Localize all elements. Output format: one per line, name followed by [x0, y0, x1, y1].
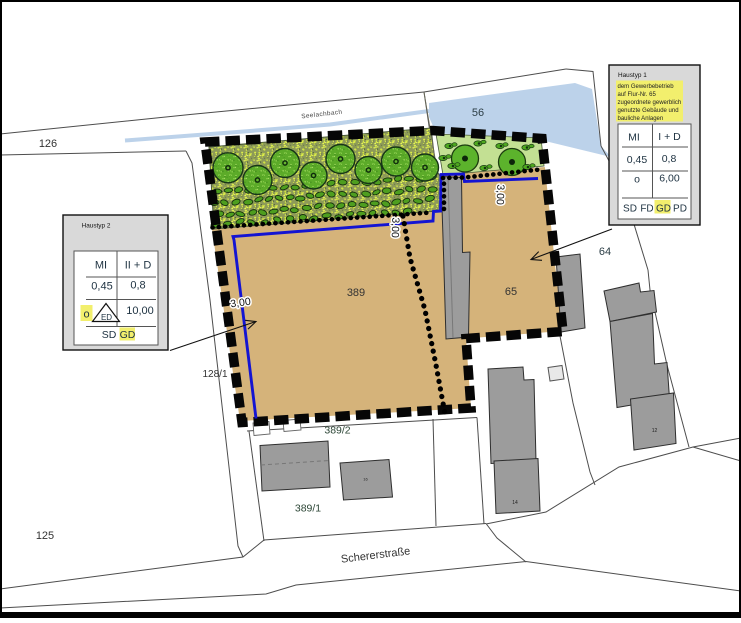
svg-text:GD: GD	[656, 204, 671, 215]
svg-text:dem Gewerbebetrieb: dem Gewerbebetrieb	[618, 84, 675, 90]
svg-text:125: 125	[36, 530, 54, 542]
svg-text:Haustyp 2: Haustyp 2	[82, 223, 111, 230]
svg-text:II + D: II + D	[125, 260, 152, 272]
svg-text:128/1: 128/1	[202, 369, 227, 380]
svg-text:GD: GD	[120, 329, 136, 341]
svg-text:0,8: 0,8	[662, 153, 677, 165]
svg-text:64: 64	[599, 246, 611, 258]
svg-text:Haustyp 1: Haustyp 1	[618, 72, 647, 79]
svg-text:65: 65	[505, 286, 517, 298]
svg-text:126: 126	[39, 138, 57, 150]
svg-text:MI: MI	[628, 132, 640, 144]
svg-text:ED: ED	[101, 313, 112, 322]
svg-text:389: 389	[347, 287, 365, 299]
svg-text:6,00: 6,00	[659, 173, 680, 185]
svg-text:14: 14	[512, 500, 518, 506]
svg-text:genutzte Gebäude und: genutzte Gebäude und	[618, 108, 679, 114]
svg-text:16: 16	[363, 477, 368, 482]
svg-text:PD: PD	[673, 204, 687, 215]
svg-text:I + D: I + D	[658, 131, 681, 143]
svg-text:12: 12	[652, 428, 658, 434]
svg-text:zugeordnete gewerblich: zugeordnete gewerblich	[618, 100, 682, 106]
svg-text:0,45: 0,45	[627, 154, 648, 166]
svg-text:0,8: 0,8	[130, 280, 145, 292]
svg-text:FD: FD	[640, 204, 653, 215]
svg-text:bauliche Anlagen: bauliche Anlagen	[618, 116, 664, 122]
svg-text:389/2: 389/2	[324, 425, 350, 437]
svg-text:auf Flur-Nr. 65: auf Flur-Nr. 65	[618, 92, 657, 98]
svg-text:56: 56	[472, 107, 484, 119]
svg-text:389/1: 389/1	[295, 503, 321, 515]
svg-text:3,00: 3,00	[389, 217, 402, 238]
svg-text:o: o	[83, 309, 89, 321]
svg-text:MI: MI	[95, 260, 107, 272]
svg-text:SD: SD	[102, 329, 117, 341]
svg-text:3,00: 3,00	[494, 184, 507, 205]
svg-text:10,00: 10,00	[126, 305, 154, 317]
svg-text:o: o	[634, 174, 640, 186]
svg-text:SD: SD	[623, 204, 637, 215]
svg-text:0,45: 0,45	[91, 281, 112, 293]
